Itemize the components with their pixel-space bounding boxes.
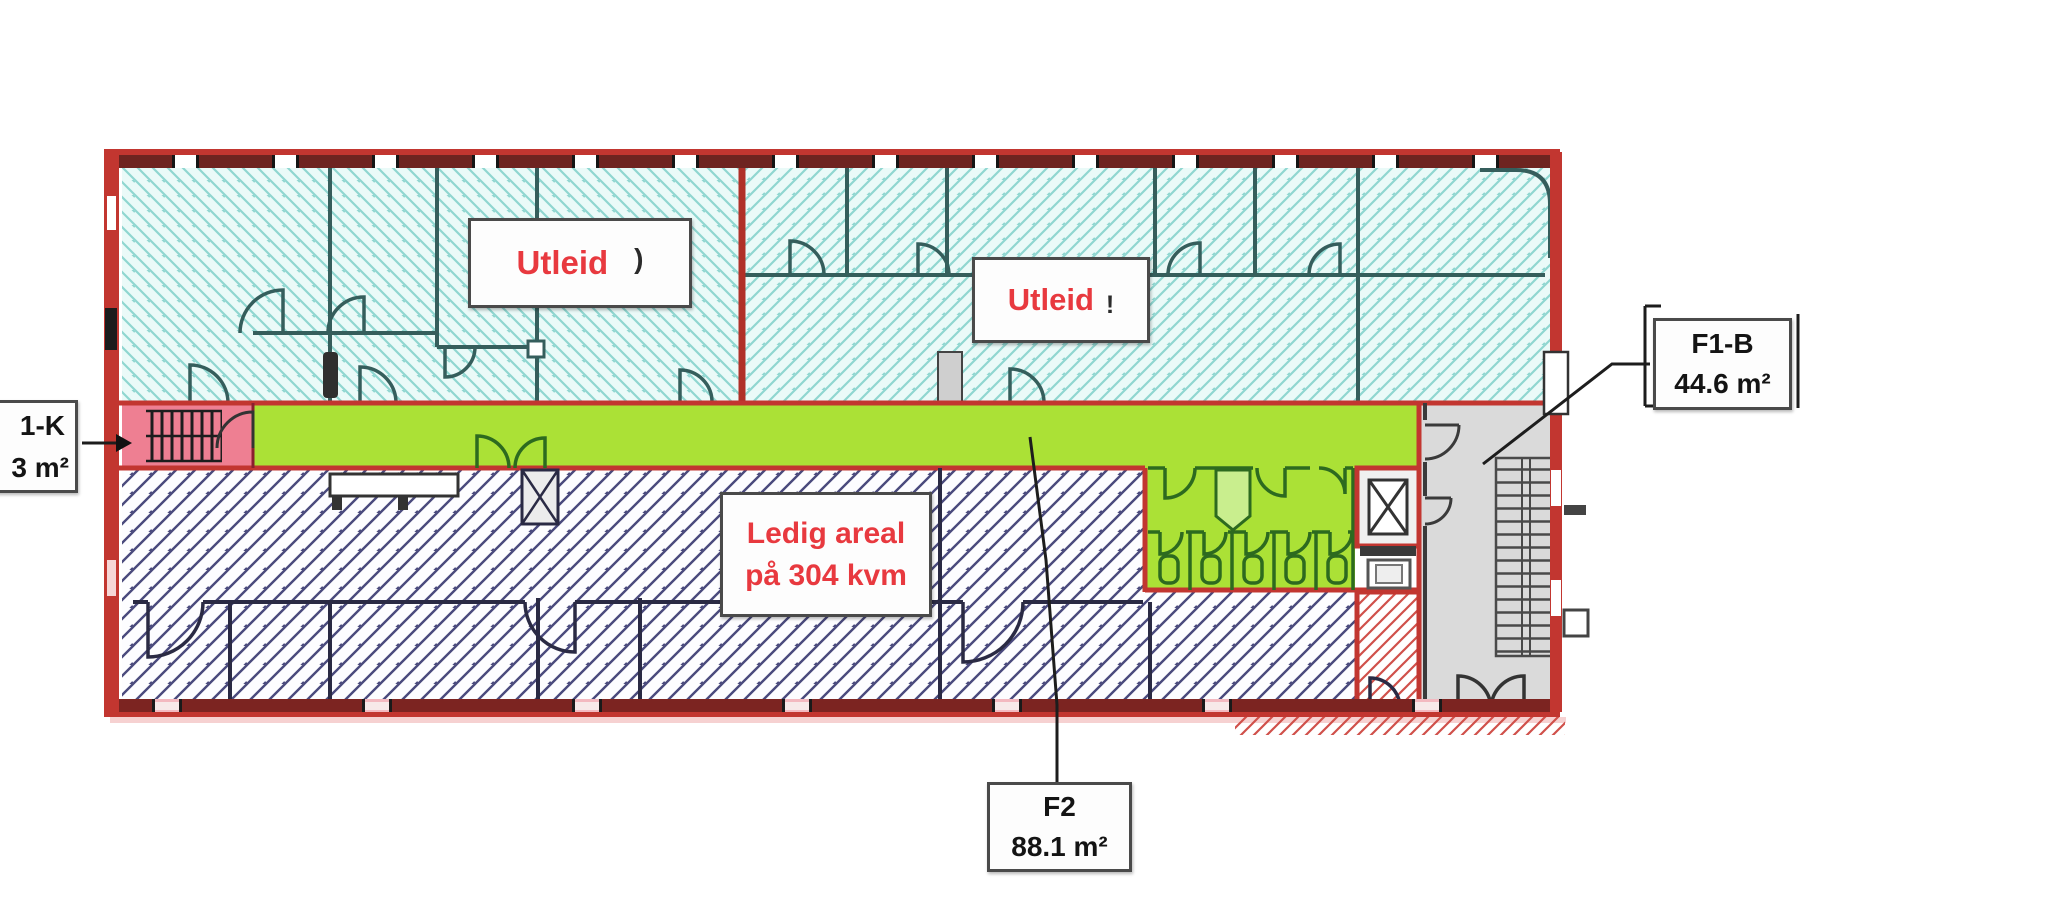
corridor-door-panel <box>938 352 962 402</box>
label-f1k-partial: 1-K 3 m² <box>0 400 78 493</box>
label-f1b: F1-B 44.6 m² <box>1653 318 1792 410</box>
available-area-line1: Ledig areal <box>747 513 905 555</box>
label-utleid-1: Utleid ) <box>468 218 692 308</box>
unit-area: 88.1 m² <box>1011 827 1108 867</box>
faded-mark: ) <box>634 243 643 275</box>
faded-mark: ! <box>1106 291 1114 320</box>
wall-junction-box <box>528 341 544 357</box>
door-leaf <box>323 352 338 398</box>
unit-area: 3 m² <box>11 447 75 489</box>
unit-code: F2 <box>1043 787 1076 827</box>
rented-label-text: Utleid <box>1008 282 1094 318</box>
toilet-door-leaf <box>1216 470 1250 530</box>
unit-area: 44.6 m² <box>1674 364 1771 404</box>
label-f2: F2 88.1 m² <box>987 782 1132 872</box>
label-available-area: Ledig areal på 304 kvm <box>720 492 932 617</box>
available-area-line2: på 304 kvm <box>745 555 907 597</box>
shaft-symbol <box>522 470 558 524</box>
unit-code: F1-B <box>1691 324 1753 364</box>
floor-plan-page: Utleid ) Utleid ! Ledig areal på 304 kvm… <box>0 0 2071 900</box>
unit-code: 1-K <box>20 405 75 447</box>
floor-plan-drawing <box>0 0 2071 900</box>
rented-label-text: Utleid <box>517 244 609 282</box>
label-utleid-2: Utleid ! <box>972 257 1150 343</box>
corridor <box>122 403 1417 468</box>
elevator <box>1357 468 1419 588</box>
red-hatched-room <box>1357 592 1419 708</box>
